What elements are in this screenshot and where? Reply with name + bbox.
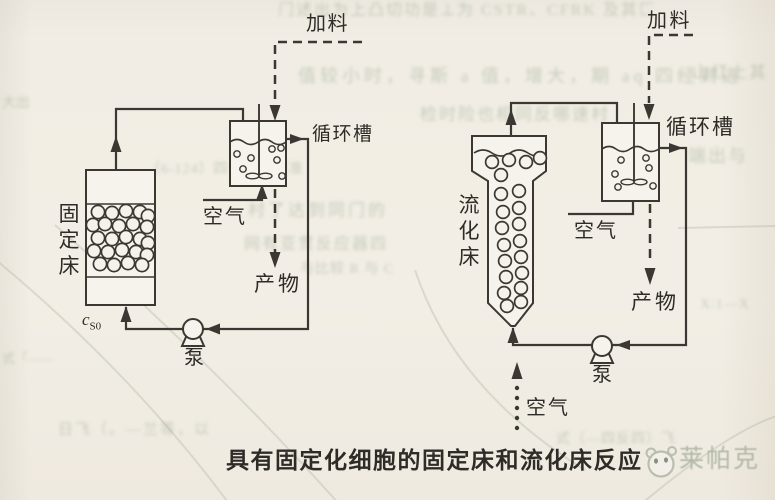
immobilized-cell: [515, 282, 528, 295]
immobilized-cell: [520, 156, 533, 169]
immobilized-cell: [91, 205, 104, 218]
immobilized-cell: [87, 244, 100, 257]
immobilized-cell: [140, 220, 153, 233]
left-fixed-bed-loop: [86, 42, 362, 346]
immobilized-cell: [119, 204, 132, 217]
air-bubble: [612, 171, 618, 177]
air-flow-dot: [515, 426, 519, 430]
laipake-logo-icon: [647, 447, 677, 477]
immobilized-cell: [500, 271, 513, 284]
immobilized-cell: [486, 156, 499, 169]
right-feed-line: [644, 35, 694, 120]
immobilized-cell: [534, 152, 547, 165]
air-bubble: [248, 155, 254, 161]
scanned-book-page: 门述出为上凸切功是⊥为 CSTR、CFRK 及其匚值较小时，寻斯 a 值，增大，…: [0, 0, 775, 500]
air-flow-dot: [515, 386, 519, 390]
immobilized-cell: [513, 218, 526, 231]
immobilized-cell: [107, 258, 120, 271]
air-bubble: [279, 173, 285, 179]
immobilized-cell: [126, 217, 139, 230]
air-bubble: [650, 183, 656, 189]
immobilized-cell: [98, 217, 111, 230]
immobilized-cell: [495, 169, 508, 182]
immobilized-cell: [497, 206, 510, 219]
immobilized-cell: [101, 245, 114, 258]
air-bubble: [234, 151, 240, 157]
left-feed-line: [270, 42, 363, 121]
air-flow-dot: [515, 406, 519, 410]
immobilized-cell: [515, 251, 528, 264]
air-flow-dot: [515, 396, 519, 400]
immobilized-cell: [514, 235, 527, 248]
immobilized-cell: [135, 258, 148, 271]
air-bubble: [618, 157, 624, 163]
left-pump: [182, 319, 204, 346]
air-bubble: [646, 165, 652, 171]
immobilized-cell: [516, 267, 529, 280]
immobilized-cell: [513, 185, 526, 198]
right-circulation-tank: [602, 123, 659, 201]
right-product-line: [645, 204, 656, 285]
immobilized-cell: [515, 296, 528, 309]
right-pump: [591, 336, 613, 363]
immobilized-cell: [496, 222, 509, 235]
immobilized-cell: [119, 230, 132, 243]
fixed-bed-immobilized-cells: [86, 204, 154, 271]
immobilized-cell: [503, 154, 516, 167]
immobilized-cell: [495, 188, 508, 201]
immobilized-cell: [91, 231, 104, 244]
immobilized-cell: [498, 239, 511, 252]
air-bubble: [643, 155, 649, 161]
immobilized-cell: [498, 287, 511, 300]
air-bubble: [269, 146, 275, 152]
air-bubble: [278, 145, 284, 151]
air-bubble: [615, 184, 621, 190]
immobilized-cell: [121, 256, 134, 269]
bottom-air-sparge-line: [512, 362, 523, 430]
right-fluidized-bed-loop: [472, 35, 693, 430]
air-flow-dot: [515, 416, 519, 420]
immobilized-cell: [105, 232, 118, 245]
air-bubble: [274, 157, 280, 163]
immobilized-cell: [115, 243, 128, 256]
left-product-line: [270, 189, 281, 268]
immobilized-cell: [501, 300, 514, 313]
immobilized-cell: [513, 202, 526, 215]
immobilized-cell: [499, 255, 512, 268]
reactor-diagram: [0, 0, 775, 500]
immobilized-cell: [93, 257, 106, 270]
air-bubble: [240, 166, 246, 172]
